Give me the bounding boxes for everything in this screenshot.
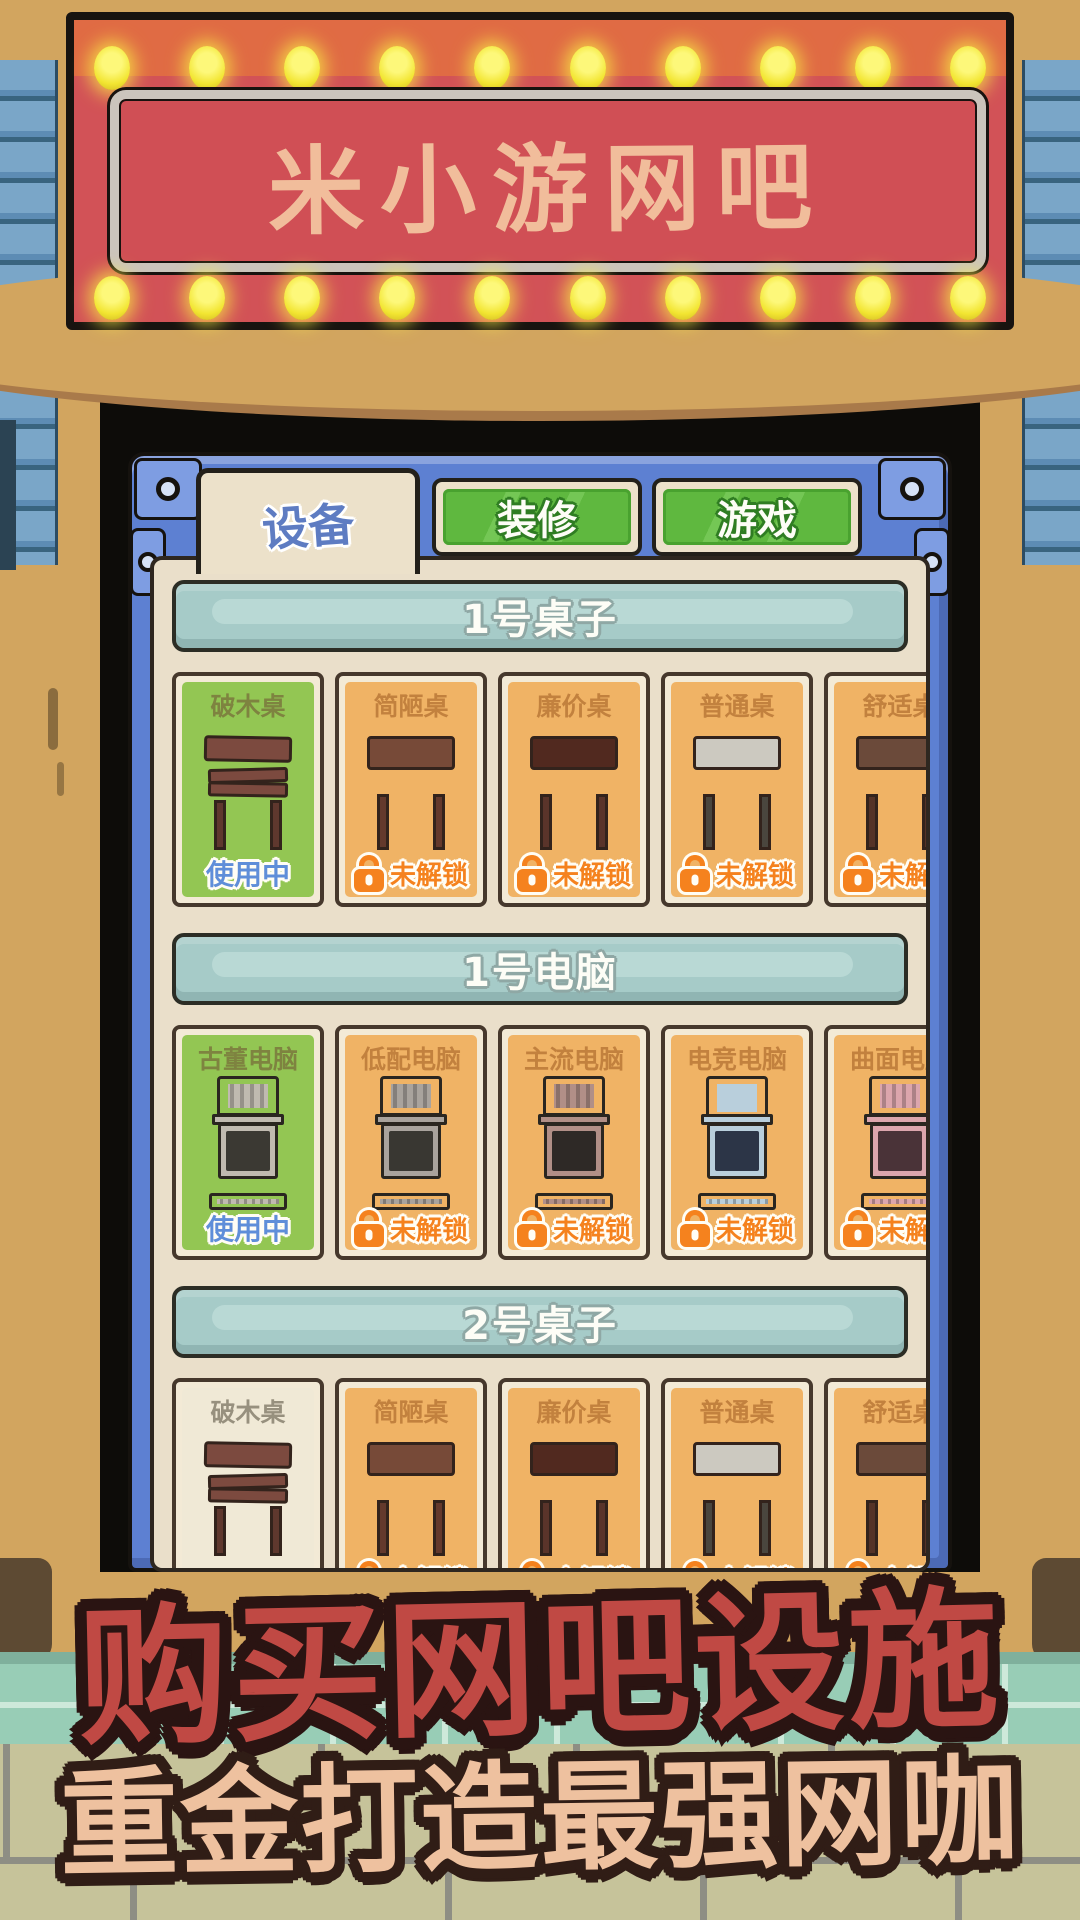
pc-low-icon [365, 1076, 457, 1210]
bulb-icon [94, 276, 130, 320]
cards-row-tables-1: 破木桌 使用中 简陋桌 未解锁 廉价桌 未解锁 [172, 672, 908, 907]
item-name: 曲面电脑 [850, 1040, 930, 1076]
bulb-icon [760, 46, 796, 90]
table-normal-icon [687, 723, 787, 855]
tab-label: 装修 [497, 488, 577, 546]
bulb-row-bottom [74, 276, 1006, 320]
item-name: 简陋桌 [373, 687, 448, 723]
frame-plate [134, 458, 202, 520]
table-broken-icon [198, 1429, 298, 1561]
tab-games[interactable]: 游戏 [652, 478, 862, 556]
tab-label: 设备 [260, 487, 356, 559]
item-card-computer[interactable]: 曲面电脑 未解锁 [824, 1025, 930, 1260]
item-card-computer[interactable]: 古董电脑 使用中 [172, 1025, 324, 1260]
status-locked: 未解锁 [517, 1210, 631, 1246]
item-card-table[interactable]: 破木桌 [172, 1378, 324, 1572]
table-crude-icon [361, 1429, 461, 1561]
status-locked: 未解锁 [843, 855, 930, 891]
section-header-table-1: 1号桌子 [172, 580, 908, 652]
lock-icon [354, 855, 384, 892]
bulb-icon [379, 276, 415, 320]
bulb-icon [665, 46, 701, 90]
pc-mainstream-icon [528, 1076, 620, 1210]
item-name: 简陋桌 [373, 1393, 448, 1429]
cards-row-computers-1: 古董电脑 使用中 低配电脑 未解锁 主流电脑 未解锁 [172, 1025, 908, 1260]
item-name: 舒适桌 [862, 687, 930, 723]
bolt-icon [156, 477, 180, 501]
table-cheap-icon [524, 723, 624, 855]
bulb-icon [760, 276, 796, 320]
pc-esports-icon [691, 1076, 783, 1210]
section-header-computer-1: 1号电脑 [172, 933, 908, 1005]
status-locked: 未解锁 [354, 855, 468, 891]
table-comfy-icon [850, 723, 930, 855]
item-name: 廉价桌 [536, 1393, 611, 1429]
status-in-use: 使用中 [206, 855, 290, 891]
table-normal-icon [687, 1429, 787, 1561]
tab-label: 游戏 [717, 488, 797, 546]
bulb-icon [855, 276, 891, 320]
status-in-use: 使用中 [206, 1210, 290, 1246]
lock-icon [354, 1210, 384, 1247]
wall-scuff [48, 688, 58, 750]
pc-curved-icon [854, 1076, 930, 1210]
bulb-icon [284, 276, 320, 320]
bulb-row-top [74, 46, 1006, 90]
section-title: 1号电脑 [462, 940, 618, 998]
lock-icon [843, 855, 873, 892]
bulb-icon [94, 46, 130, 90]
bulb-icon [284, 46, 320, 90]
tab-decoration[interactable]: 装修 [432, 478, 642, 556]
pc-antique-icon [202, 1076, 294, 1210]
item-name: 普通桌 [699, 687, 774, 723]
table-crude-icon [361, 723, 461, 855]
table-broken-icon [198, 723, 298, 855]
status-locked: 未解锁 [680, 1210, 794, 1246]
bulb-icon [570, 46, 606, 90]
section-header-table-2: 2号桌子 [172, 1286, 908, 1358]
section-title: 2号桌子 [462, 1293, 618, 1351]
marquee-sign: 米小游网吧 [66, 12, 1014, 330]
item-card-table[interactable]: 廉价桌 未解锁 [498, 1378, 650, 1572]
item-card-table[interactable]: 简陋桌 未解锁 [335, 672, 487, 907]
status-locked: 未解锁 [354, 1210, 468, 1246]
item-name: 破木桌 [210, 1393, 285, 1429]
lock-icon [517, 1210, 547, 1247]
frame-plate [878, 458, 946, 520]
bulb-icon [855, 46, 891, 90]
item-card-table[interactable]: 破木桌 使用中 [172, 672, 324, 907]
bulb-icon [379, 46, 415, 90]
item-card-computer[interactable]: 电竞电脑 未解锁 [661, 1025, 813, 1260]
item-card-table[interactable]: 舒适桌 未解锁 [824, 672, 930, 907]
section-title: 1号桌子 [462, 587, 618, 645]
sign-frame: 米小游网吧 [110, 90, 986, 272]
bulb-icon [474, 46, 510, 90]
item-name: 廉价桌 [536, 687, 611, 723]
item-card-table[interactable]: 简陋桌 未解锁 [335, 1378, 487, 1572]
bulb-icon [665, 276, 701, 320]
status-locked: 未解锁 [843, 1210, 930, 1246]
promo-line-2: 重金打造最强网咖 [0, 1714, 1080, 1900]
lock-icon [680, 855, 710, 892]
wall-detail [0, 420, 16, 570]
cafe-title: 米小游网吧 [267, 109, 828, 253]
lock-icon [680, 1210, 710, 1247]
bolt-icon [900, 477, 924, 501]
bulb-icon [950, 46, 986, 90]
item-card-computer[interactable]: 低配电脑 未解锁 [335, 1025, 487, 1260]
item-card-table[interactable]: 廉价桌 未解锁 [498, 672, 650, 907]
item-card-computer[interactable]: 主流电脑 未解锁 [498, 1025, 650, 1260]
game-screen: 米小游网吧 1号桌子 破木桌 使用中 简陋桌 [0, 0, 1080, 1920]
lock-icon [517, 855, 547, 892]
shop-panel: 1号桌子 破木桌 使用中 简陋桌 未解锁 廉价桌 [150, 556, 930, 1572]
item-name: 舒适桌 [862, 1393, 930, 1429]
table-cheap-icon [524, 1429, 624, 1561]
bulb-icon [570, 276, 606, 320]
item-card-table[interactable]: 普通桌 未解锁 [661, 672, 813, 907]
bulb-icon [189, 276, 225, 320]
bulb-icon [189, 46, 225, 90]
bulb-icon [474, 276, 510, 320]
item-name: 电竞电脑 [687, 1040, 787, 1076]
item-name: 低配电脑 [361, 1040, 461, 1076]
wall-scuff [57, 762, 64, 796]
item-name: 古董电脑 [198, 1040, 298, 1076]
item-name: 破木桌 [210, 687, 285, 723]
item-name: 普通桌 [699, 1393, 774, 1429]
tab-equipment[interactable]: 设备 [196, 468, 420, 574]
status-locked: 未解锁 [517, 855, 631, 891]
bulb-icon [950, 276, 986, 320]
item-name: 主流电脑 [524, 1040, 624, 1076]
status-locked: 未解锁 [680, 855, 794, 891]
lock-icon [843, 1210, 873, 1247]
